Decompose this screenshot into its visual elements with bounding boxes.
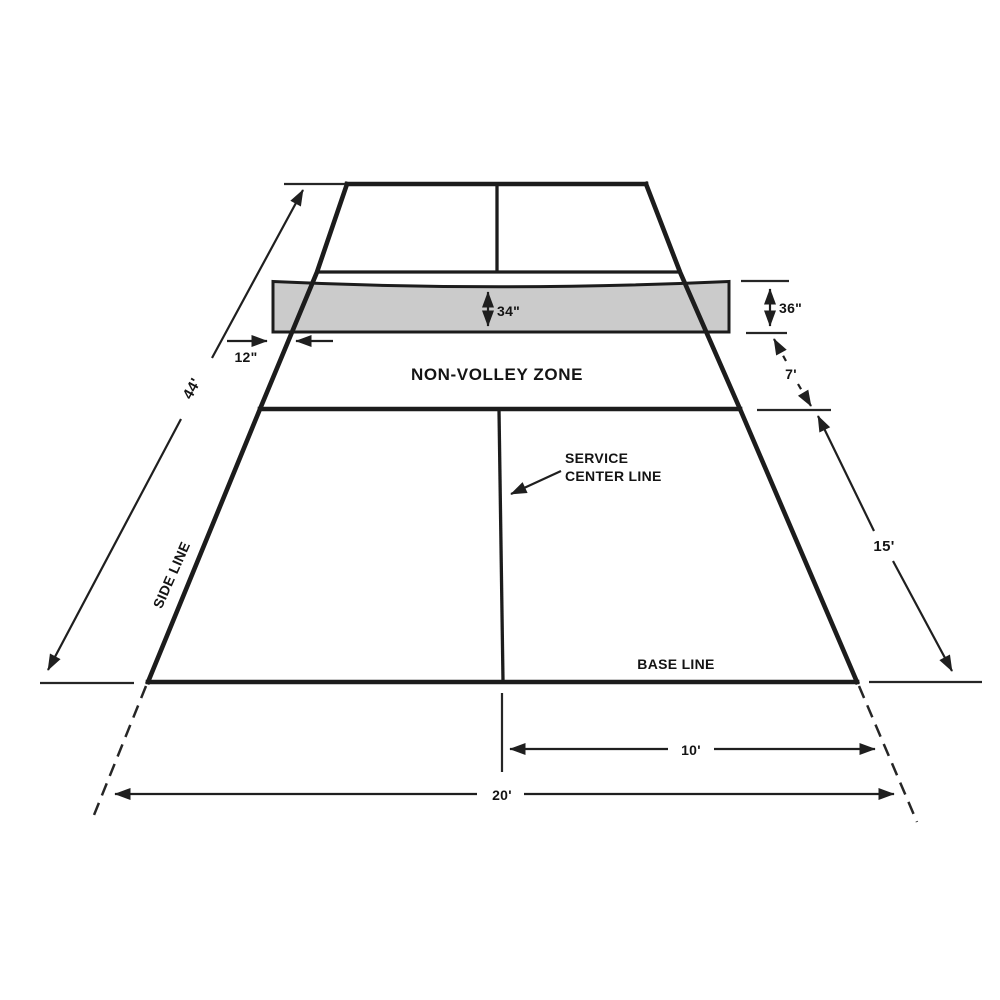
- service-callout-line2: CENTER LINE: [565, 468, 662, 484]
- left-sideline: [148, 184, 347, 682]
- dim-10-label: 10': [681, 742, 701, 758]
- service-callout-line1: SERVICE: [565, 450, 628, 466]
- dim-20-label: 20': [492, 787, 512, 803]
- non-volley-zone-label: NON-VOLLEY ZONE: [411, 365, 583, 384]
- dim-44-lower-segment: [48, 419, 181, 670]
- dim-36-label: 36": [779, 300, 802, 316]
- pickleball-court-diagram: NON-VOLLEY ZONE SERVICE CENTER LINE SIDE…: [0, 0, 1000, 1000]
- service-center-line-callout-arrow: [511, 471, 561, 494]
- dim-7-lower-segment: [798, 384, 811, 406]
- sideline-extension-left: [92, 686, 146, 820]
- dim-34-label: 34": [497, 303, 520, 319]
- extension-lines: [40, 184, 982, 822]
- dim-44-label: 44': [180, 375, 205, 402]
- dim-7-label: 7': [785, 366, 797, 382]
- dim-12-label: 12": [234, 349, 257, 365]
- dim-7-upper-segment: [774, 339, 786, 361]
- dim-15-label: 15': [873, 538, 894, 555]
- service-center-line: [499, 410, 503, 681]
- base-line-label: BASE LINE: [637, 656, 714, 672]
- dim-15-lower-segment: [893, 561, 952, 671]
- side-line-label: SIDE LINE: [150, 539, 194, 611]
- court-lines: [148, 184, 857, 682]
- sideline-extension-right: [859, 686, 917, 822]
- court-diagram-canvas: NON-VOLLEY ZONE SERVICE CENTER LINE SIDE…: [0, 0, 1000, 1000]
- text-labels: NON-VOLLEY ZONE SERVICE CENTER LINE SIDE…: [150, 300, 895, 803]
- dim-15-upper-segment: [818, 416, 874, 531]
